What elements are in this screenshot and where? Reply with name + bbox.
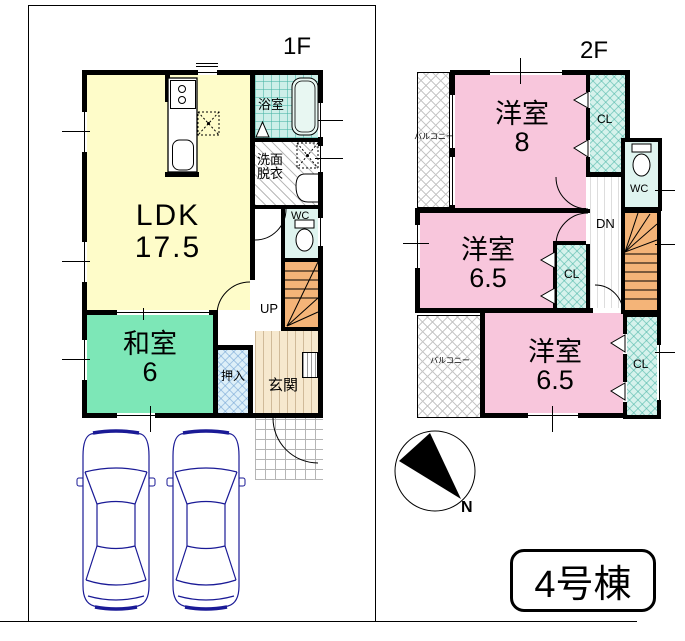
label-wc-1f: WC — [291, 211, 309, 223]
hall-dn — [590, 177, 625, 308]
dim-tick — [62, 359, 90, 360]
dim-tick — [150, 406, 151, 432]
label-ldk-name: LDK — [108, 200, 228, 232]
wall-2f-clmid-left — [553, 245, 557, 308]
label-room65b: 洋室 6.5 — [495, 338, 615, 395]
dim-tick — [655, 190, 675, 191]
window-room65b-bottom — [528, 413, 578, 418]
closet-bottom-door-gap-2 — [623, 382, 627, 402]
label-cl-mid: CL — [564, 268, 579, 281]
label-oshiire: 押入 — [221, 370, 245, 383]
dim-tick — [552, 406, 553, 432]
label-washitsu-size: 6 — [95, 358, 205, 386]
lot-boundary-bottom — [0, 621, 637, 622]
floor1-label: 1F — [283, 34, 311, 59]
label-wc-2f: WC — [630, 184, 648, 196]
wall-2f-room65b-left — [480, 313, 485, 418]
door-opening-ldk-hall — [250, 282, 255, 315]
building-number-text: 4号棟 — [534, 553, 631, 608]
wall-bath-senmen — [255, 138, 318, 142]
window-kitchen-top — [198, 70, 217, 75]
door-opening-room65a — [586, 213, 590, 244]
window-senmen-right — [318, 146, 323, 172]
stairs-2f — [621, 209, 661, 314]
window-ldk-left-1 — [82, 112, 87, 152]
closet-top-door-gap-1 — [586, 92, 590, 108]
window-ldk-left-2 — [82, 242, 87, 282]
wall-2f-h208 — [415, 208, 590, 213]
label-room65a-size: 6.5 — [428, 264, 548, 292]
dim-tick — [655, 352, 675, 353]
door-opening-room65b — [593, 308, 621, 313]
label-washitsu-name: 和室 — [95, 330, 205, 358]
wall-senmen-bottom — [255, 205, 318, 209]
wall-wc-stairs — [281, 258, 318, 262]
label-balcony-bottom: バルコニー — [421, 357, 479, 365]
window-room8-balcony-2 — [450, 157, 455, 205]
room-wc-2f — [621, 138, 662, 211]
compass-north-label: N — [461, 500, 473, 517]
dim-tick — [62, 131, 90, 132]
window-wc-right — [318, 218, 323, 246]
floorplan-canvas: 1F 2F LDK 17.5 和室 6 — [0, 0, 685, 641]
label-cl-top: CL — [597, 113, 612, 126]
lot-boundary-right — [375, 5, 376, 622]
kitchen-wall-stub-top — [165, 75, 170, 102]
window-room8-top — [490, 70, 562, 75]
dim-tick — [315, 120, 343, 121]
label-balcony-top: バルコニー — [414, 133, 454, 141]
label-genkan: 玄関 — [268, 378, 298, 394]
dim-tick — [403, 243, 429, 244]
label-senmen: 洗面 脱衣 — [257, 153, 283, 180]
closet-top-door-gap-2 — [586, 140, 590, 157]
wall-2f-clmid-top — [553, 241, 590, 245]
dim-tick — [315, 158, 343, 159]
car-icon-2 — [167, 431, 245, 609]
balcony-bottom — [417, 315, 483, 418]
dim-tick — [655, 244, 675, 245]
dim-tick — [62, 261, 90, 262]
wall-ldk-right — [250, 75, 255, 280]
label-room65a: 洋室 6.5 — [428, 236, 548, 293]
window-room65a-left — [415, 225, 420, 268]
entrance-porch — [255, 418, 323, 480]
label-room65a-name: 洋室 — [428, 236, 548, 264]
window-cl-bottom-right — [657, 345, 661, 400]
wall-stairs-bottom — [281, 327, 318, 331]
door-opening-room8 — [586, 177, 590, 209]
lot-boundary-left — [28, 5, 29, 622]
label-room8: 洋室 8 — [462, 100, 582, 157]
building-number-badge: 4号棟 — [510, 549, 656, 612]
label-ldk: LDK 17.5 — [108, 200, 228, 263]
floor2-label: 2F — [580, 38, 608, 63]
label-up: UP — [260, 302, 278, 316]
label-ldk-size: 17.5 — [108, 232, 228, 264]
wall-2f-cl-top-bottom — [588, 172, 625, 177]
sliding-door-ldk-washitsu — [117, 310, 209, 315]
window-mark-top-1 — [196, 63, 218, 64]
label-senmen-2: 脱衣 — [257, 167, 283, 181]
label-room8-name: 洋室 — [462, 100, 582, 128]
wall-washitsu-hall — [213, 315, 218, 413]
label-senmen-1: 洗面 — [257, 153, 283, 167]
wall-wc-left — [281, 209, 285, 327]
label-room8-size: 8 — [462, 128, 582, 156]
window-washitsu-left — [82, 340, 87, 380]
label-washitsu: 和室 6 — [95, 330, 205, 387]
dim-tick — [520, 58, 521, 84]
label-bath: 浴室 — [258, 98, 284, 112]
shoe-cabinet — [302, 352, 318, 378]
lot-boundary-top — [28, 5, 376, 6]
window-mark-top-2 — [196, 66, 218, 67]
label-dn: DN — [596, 217, 615, 231]
wall-oshiire-genkan — [248, 350, 253, 413]
kitchen-wall-stub-bottom — [165, 172, 199, 177]
label-room65b-name: 洋室 — [495, 338, 615, 366]
car-icon-1 — [77, 431, 155, 609]
label-cl-bottom: CL — [633, 358, 648, 371]
closet-bottom-door-gap-1 — [623, 334, 627, 354]
label-room65b-size: 6.5 — [495, 366, 615, 394]
dim-tick — [143, 308, 144, 320]
